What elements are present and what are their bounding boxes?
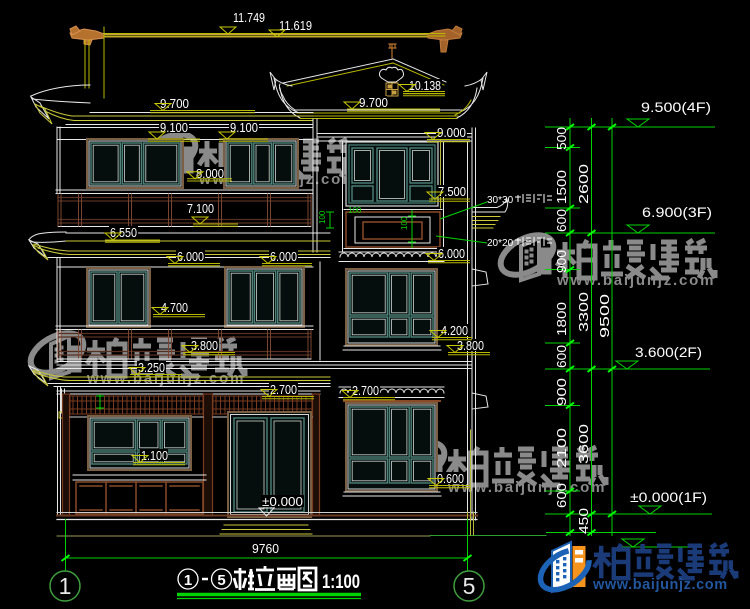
svg-text:1500: 1500 <box>554 170 569 204</box>
svg-text:3600: 3600 <box>576 424 591 464</box>
svg-text:5: 5 <box>463 573 476 599</box>
svg-text:30*30: 30*30 <box>487 195 514 206</box>
svg-text:1: 1 <box>59 573 72 599</box>
svg-text:±0.000(1F): ±0.000(1F) <box>630 489 707 505</box>
svg-text:100: 100 <box>400 216 409 230</box>
svg-text:1: 1 <box>184 572 192 589</box>
svg-text:1:100: 1:100 <box>322 572 360 593</box>
svg-text:6.900(3F): 6.900(3F) <box>642 204 712 220</box>
svg-text:7.100: 7.100 <box>187 201 214 216</box>
svg-text:3.600(2F): 3.600(2F) <box>635 344 702 360</box>
svg-text:600: 600 <box>554 209 569 232</box>
svg-text:500: 500 <box>554 127 569 150</box>
svg-text:2600: 2600 <box>576 164 591 204</box>
svg-text:2100: 2100 <box>554 428 569 468</box>
svg-text:11.749: 11.749 <box>233 10 265 25</box>
svg-text:9.700: 9.700 <box>359 95 388 110</box>
svg-text:100: 100 <box>348 206 362 215</box>
svg-text:9760: 9760 <box>252 541 279 556</box>
svg-text:5: 5 <box>217 572 225 589</box>
svg-text:600: 600 <box>554 345 569 368</box>
svg-text:450: 450 <box>576 508 591 534</box>
svg-text:1800: 1800 <box>554 302 569 336</box>
svg-text:20*20: 20*20 <box>487 238 514 249</box>
svg-text:900: 900 <box>554 378 569 406</box>
svg-text:±0.000: ±0.000 <box>262 494 303 509</box>
svg-text:100: 100 <box>318 210 327 224</box>
svg-text:900: 900 <box>554 250 569 273</box>
svg-text:www.baijunjz.com: www.baijunjz.com <box>592 577 728 593</box>
svg-text:600: 600 <box>554 483 569 508</box>
svg-text:3300: 3300 <box>576 292 591 332</box>
svg-text:9500: 9500 <box>597 294 612 338</box>
svg-text:9.500(4F): 9.500(4F) <box>641 99 711 115</box>
